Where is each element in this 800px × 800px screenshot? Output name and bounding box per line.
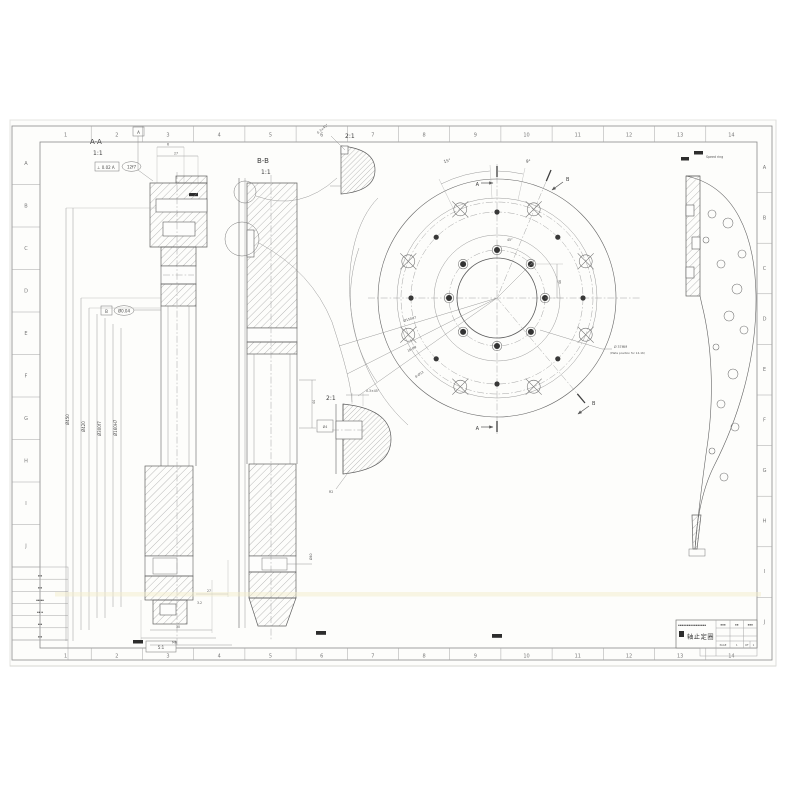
grid-row-label: G bbox=[763, 468, 767, 474]
dim-diameter: Ø420 bbox=[81, 421, 86, 432]
dim-diameter: Ø450 bbox=[65, 414, 70, 425]
detail-scale: 2:1 bbox=[326, 395, 336, 402]
section-bb-label: B-B bbox=[257, 157, 269, 165]
grid-col-label: 13 bbox=[677, 654, 683, 660]
grid-col-label: 1 bbox=[64, 654, 67, 660]
grid-col-label: 11 bbox=[575, 654, 581, 660]
datum-b-flag: B bbox=[105, 309, 108, 314]
gdt-frame: ⊥ 0.02 A bbox=[97, 165, 115, 170]
revision-row: ▪ ▪ bbox=[38, 635, 43, 638]
ink-mark bbox=[681, 157, 689, 161]
section-aa-label: A-A bbox=[90, 138, 102, 146]
grid-row-label: C bbox=[763, 266, 767, 272]
cut-label-a: A bbox=[476, 182, 480, 188]
grid-col-label: 8 bbox=[423, 654, 426, 660]
dim: 44 bbox=[312, 400, 316, 404]
note-line-2: (Plate position for 14-16) bbox=[610, 351, 645, 355]
title-stamp bbox=[679, 631, 684, 637]
grid-col-label: 5 bbox=[269, 133, 272, 139]
revision-row: ▪ ▪ bbox=[38, 575, 43, 578]
grid-row-label: A bbox=[763, 165, 767, 171]
grid-col-label: 12 bbox=[626, 133, 632, 139]
grid-row-label: C bbox=[24, 246, 28, 252]
ink-mark bbox=[694, 151, 703, 155]
grid-col-label: 8 bbox=[423, 133, 426, 139]
grid-row-label: F bbox=[763, 418, 766, 424]
ink-mark bbox=[492, 634, 502, 638]
dim: Ø4 bbox=[323, 424, 328, 429]
dim-diameter: Ø160H7 bbox=[113, 419, 118, 436]
company-line: ▪▪▪▪▪▪▪▪▪▪▪▪▪▪▪▪ bbox=[678, 624, 706, 627]
page-label: PAGE bbox=[720, 643, 727, 647]
gdt-oval: Ø0.04 bbox=[118, 308, 131, 313]
grid-col-label: 9 bbox=[474, 654, 477, 660]
dim-radius: R2 bbox=[329, 490, 333, 494]
grid-col-label: 2 bbox=[115, 654, 118, 660]
grid-row-label: J bbox=[24, 544, 26, 550]
grid-col-label: 3 bbox=[166, 654, 169, 660]
dim: 30 bbox=[176, 625, 180, 629]
grid-row-label: G bbox=[24, 416, 28, 422]
grid-row-label: E bbox=[763, 367, 766, 373]
grid-col-label: 7 bbox=[371, 133, 374, 139]
dim-angle: 9° bbox=[526, 159, 531, 164]
grid-row-label: H bbox=[763, 519, 767, 525]
grid-col-label: 5 bbox=[269, 654, 272, 660]
grid-col-label: 12 bbox=[626, 654, 632, 660]
revision-row: ▪▪ ▪▪ bbox=[36, 599, 44, 602]
title-block-header: ▪▪▪ bbox=[748, 624, 754, 627]
grid-col-label: 10 bbox=[523, 654, 529, 660]
drawing-title: 轴止定圈 bbox=[687, 633, 714, 641]
right-view-note: Speed ring bbox=[706, 155, 723, 159]
cut-label-b: B bbox=[592, 401, 596, 407]
grid-col-label: 4 bbox=[218, 654, 221, 660]
grid-col-label: 1 bbox=[64, 133, 67, 139]
grid-row-label: I bbox=[25, 501, 26, 507]
of-label: OF bbox=[745, 643, 749, 647]
dim-angle: 45° bbox=[507, 238, 513, 242]
title-block-header: ▪▪ bbox=[735, 624, 739, 627]
grid-row-label: D bbox=[763, 317, 767, 323]
grid-col-label: 7 bbox=[371, 654, 374, 660]
grid-col-label: 3 bbox=[166, 133, 169, 139]
detail-scale: 2:1 bbox=[345, 133, 355, 140]
grid-col-label: 14 bbox=[728, 654, 734, 660]
grid-col-label: 6 bbox=[320, 133, 323, 139]
note-line-1: Ø 37MM bbox=[614, 344, 627, 349]
dim: M6 bbox=[172, 641, 177, 645]
dim-chamfer: 0.3×45° bbox=[366, 389, 380, 393]
cut-label-a: A bbox=[476, 426, 480, 432]
dim: 48 bbox=[558, 280, 562, 284]
title-block-header: ▪▪▪ bbox=[720, 624, 726, 627]
dim: 3.2 bbox=[197, 601, 202, 605]
grid-row-label: F bbox=[25, 374, 28, 380]
grid-row-label: I bbox=[764, 569, 765, 575]
grid-col-label: 4 bbox=[218, 133, 221, 139]
grid-col-label: 9 bbox=[474, 133, 477, 139]
revision-row: ▪▪ ▪ bbox=[37, 611, 43, 614]
grid-col-label: 2 bbox=[115, 133, 118, 139]
revision-row: ▪ ▪ bbox=[38, 623, 43, 626]
paper-sheet bbox=[10, 120, 776, 666]
grid-row-label: H bbox=[24, 459, 28, 465]
grid-row-label: D bbox=[24, 289, 28, 295]
dim: Ø40 bbox=[308, 553, 313, 560]
grid-col-label: 14 bbox=[728, 133, 734, 139]
grid-row-label: E bbox=[24, 331, 27, 337]
grid-col-label: 13 bbox=[677, 133, 683, 139]
grid-row-label: J bbox=[763, 620, 765, 626]
section-bb-scale: 1:1 bbox=[261, 169, 271, 176]
dim-diameter: Ø300f7 bbox=[97, 421, 102, 436]
drawing-canvas: 1 2 3 4 5 6 7 8 9 10 11 12 13 14 1 2 3 4… bbox=[0, 0, 800, 800]
ink-mark bbox=[316, 631, 326, 635]
scanned-engineering-drawing: 1 2 3 4 5 6 7 8 9 10 11 12 13 14 1 2 3 4… bbox=[0, 0, 800, 800]
revision-row: ▪ ▪ bbox=[38, 587, 43, 590]
dim: 27 bbox=[174, 152, 178, 156]
ink-mark bbox=[133, 640, 143, 644]
cut-label-b: B bbox=[566, 177, 570, 183]
grid-col-label: 6 bbox=[320, 654, 323, 660]
datum-a-flag: A bbox=[137, 130, 140, 135]
fold-stamp-label: 5:1 bbox=[158, 645, 165, 650]
gdt-oval: 12f7 bbox=[127, 164, 136, 169]
dim: 6 bbox=[167, 143, 169, 147]
grid-col-label: 10 bbox=[523, 133, 529, 139]
grid-row-label: B bbox=[24, 204, 28, 210]
grid-row-label: B bbox=[763, 216, 767, 222]
grid-col-label: 11 bbox=[575, 133, 581, 139]
grid-row-label: A bbox=[24, 161, 28, 167]
section-aa-scale: 1:1 bbox=[93, 150, 103, 157]
